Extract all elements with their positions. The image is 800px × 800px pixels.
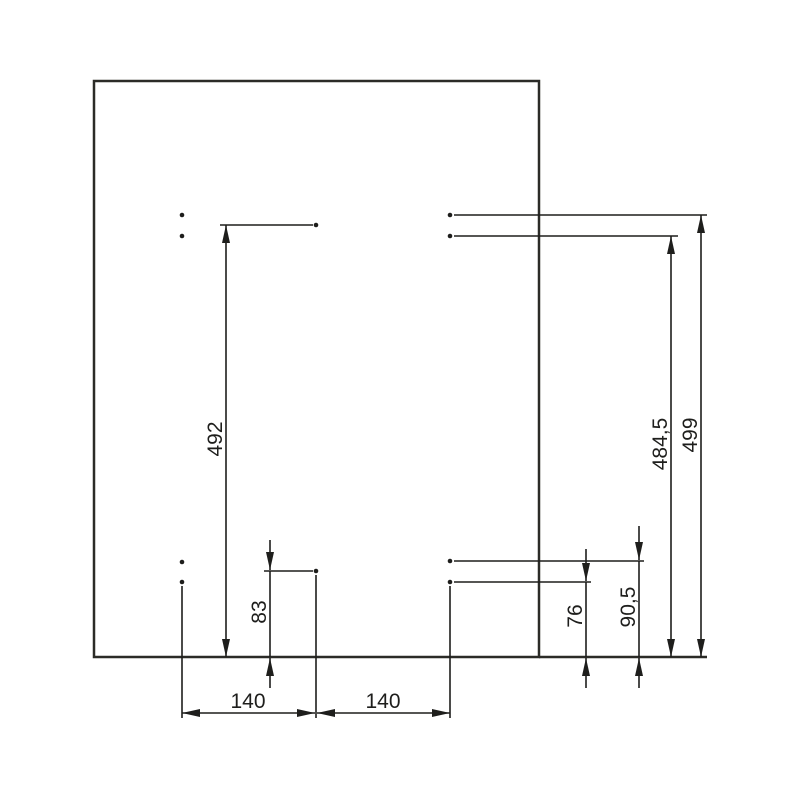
technical-drawing-page: 492 484,5 499 83 76 90,5 140 140: [0, 0, 800, 800]
dimension-label-76: 76: [564, 604, 587, 627]
dimension-label-140-right: 140: [365, 690, 400, 713]
drill-hole: [180, 213, 185, 218]
drill-hole: [180, 234, 185, 239]
dimension-label-83: 83: [248, 600, 271, 623]
drill-hole: [448, 234, 453, 239]
technical-drawing-canvas: 492 484,5 499 83 76 90,5 140 140: [0, 0, 800, 800]
dimension-label-499: 499: [679, 417, 702, 452]
drill-hole: [448, 559, 453, 564]
drill-hole: [448, 580, 453, 585]
drill-hole: [180, 580, 185, 585]
dimension-label-492: 492: [204, 421, 227, 456]
drill-hole: [180, 560, 185, 565]
dimension-label-140-left: 140: [230, 690, 265, 713]
drill-hole: [314, 223, 319, 228]
drill-hole: [314, 569, 319, 574]
dimension-label-90-5: 90,5: [617, 587, 640, 628]
drill-hole: [448, 213, 453, 218]
dimension-label-484-5: 484,5: [649, 418, 672, 471]
